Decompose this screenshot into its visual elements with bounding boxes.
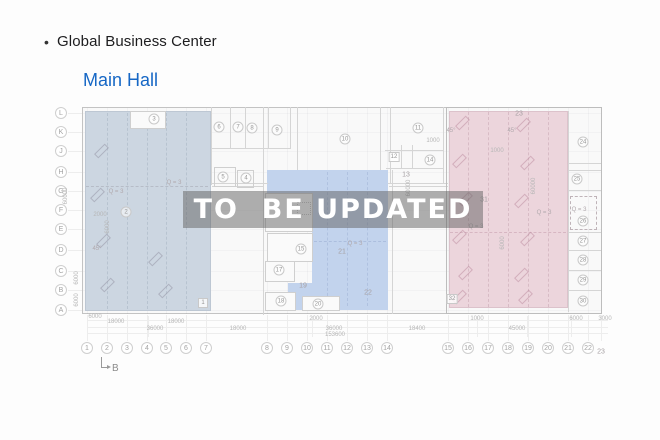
axis-leader-line — [127, 315, 128, 341]
row-axis-label: L — [55, 107, 67, 119]
watermark-banner: TO BE UPDATED — [183, 191, 483, 228]
room-number: 2 — [121, 207, 132, 218]
dimension-label: 60000 — [531, 178, 537, 195]
dimension-label: 45000 — [509, 326, 526, 332]
room-number: 30 — [578, 296, 589, 307]
room-number: 28 — [578, 255, 589, 266]
dimension-label: 1000 — [490, 148, 503, 154]
dimension-label: 2000 — [93, 212, 106, 218]
axis-leader-line — [307, 315, 308, 341]
wall-line — [380, 107, 381, 170]
col-axis-label: 8 — [261, 342, 273, 354]
row-axis-label: C — [55, 265, 67, 277]
axis-leader-line — [68, 310, 82, 311]
room-number: 26 — [578, 216, 589, 227]
row-axis-label: B — [55, 284, 67, 296]
dimension-line — [88, 320, 608, 321]
note-label: Q = 3 — [537, 210, 552, 216]
room-number: 18 — [276, 296, 287, 307]
dimension-label: 18400 — [409, 326, 426, 332]
room-number: 11 — [413, 123, 424, 134]
axis-leader-line — [287, 315, 288, 341]
room-number: 3 — [149, 114, 160, 125]
wall-line — [443, 107, 444, 184]
room-number: 15 — [296, 244, 307, 255]
row-axis-label: D — [55, 244, 67, 256]
row-axis-label: E — [55, 223, 67, 235]
dimension-line — [88, 333, 608, 334]
wall-line — [385, 150, 444, 151]
room-number: 8 — [247, 123, 258, 134]
room-number: 4 — [241, 173, 252, 184]
room-number: 6 — [214, 122, 225, 133]
note-label: Q = 3 — [348, 241, 363, 247]
list-bullet-icon: • — [44, 34, 49, 50]
axis-leader-line — [68, 290, 82, 291]
wall-line — [290, 107, 291, 148]
col-axis-label: 6 — [180, 342, 192, 354]
wall-line — [388, 183, 448, 184]
dimension-label: 6000 — [74, 293, 80, 306]
axis-leader-line — [206, 315, 207, 341]
axis-leader-line — [68, 113, 82, 114]
note-label: 45° — [446, 128, 455, 134]
room-number: 5 — [218, 172, 229, 183]
col-axis-label: 20 — [542, 342, 554, 354]
col-axis-label: 7 — [200, 342, 212, 354]
col-axis-label: 19 — [522, 342, 534, 354]
col-axis-label: 17 — [482, 342, 494, 354]
axis-leader-line — [548, 315, 549, 341]
dimension-label: 6000 — [569, 316, 582, 322]
page-title: Global Business Center — [57, 33, 217, 50]
axis-leader-line — [488, 315, 489, 341]
row-axis-label: A — [55, 304, 67, 316]
room-number: 29 — [578, 275, 589, 286]
col-axis-label: 22 — [582, 342, 594, 354]
axis-leader-line — [588, 315, 589, 341]
wall-line — [263, 107, 264, 193]
col-axis-label: 1 — [81, 342, 93, 354]
col-axis-label: 11 — [321, 342, 333, 354]
room-number: 20 — [313, 299, 324, 310]
dimension-label: 6000 — [500, 236, 506, 249]
dimension-label: 153600 — [325, 332, 345, 338]
dimension-label: 6000 — [88, 314, 101, 320]
room-number: 32 — [447, 294, 458, 304]
section-marker-label: B — [112, 363, 119, 374]
dimension-label: 6000 — [105, 220, 111, 233]
dimension-label: 2000 — [309, 316, 322, 322]
room-number: 14 — [425, 155, 436, 166]
room-number: 21 — [338, 249, 346, 256]
dimension-line — [527, 316, 528, 337]
zone-guide-line — [147, 113, 149, 309]
axis-leader-line — [468, 315, 469, 341]
wall-line — [386, 168, 443, 169]
axis-leader-line — [68, 229, 82, 230]
col-axis-label: 23 — [597, 349, 605, 356]
dimension-label: 18000 — [230, 326, 247, 332]
wall-line — [412, 145, 413, 168]
col-axis-label: 13 — [361, 342, 373, 354]
dimension-label: 6000 — [74, 271, 80, 284]
axis-leader-line — [68, 191, 82, 192]
room-number: 1 — [198, 298, 208, 308]
col-axis-label: 10 — [301, 342, 313, 354]
wall-line — [211, 148, 291, 149]
room-number: 7 — [233, 122, 244, 133]
room-number: 22 — [364, 290, 372, 297]
wall-line — [390, 107, 391, 184]
wall-line — [401, 145, 402, 168]
axis-leader-line — [68, 250, 82, 251]
col-axis-label: 9 — [281, 342, 293, 354]
note-label: 45° — [92, 246, 101, 252]
room-number: 24 — [578, 137, 589, 148]
zone-guide-line — [86, 186, 208, 188]
dimension-label: 1000 — [470, 316, 483, 322]
col-axis-label: 5 — [160, 342, 172, 354]
dimension-label: 36000 — [147, 326, 164, 332]
dimension-label: 60000 — [63, 188, 69, 205]
row-axis-label: J — [55, 145, 67, 157]
col-axis-label: 14 — [381, 342, 393, 354]
col-axis-label: 16 — [462, 342, 474, 354]
dimension-label: 18000 — [108, 319, 125, 325]
dimension-label: 18000 — [168, 319, 185, 325]
axis-leader-line — [68, 172, 82, 173]
col-axis-label: 2 — [101, 342, 113, 354]
zone-guide-line — [166, 113, 168, 309]
col-axis-label: 21 — [562, 342, 574, 354]
room-number: 13 — [402, 172, 410, 179]
dimension-line — [387, 316, 388, 337]
wall-line — [211, 107, 212, 185]
room-number: 19 — [299, 283, 307, 290]
wall-line — [389, 186, 448, 187]
row-axis-label: F — [55, 204, 67, 216]
note-label: 45° — [507, 128, 516, 134]
dimension-label: 3000 — [598, 316, 611, 322]
room-number: 10 — [340, 134, 351, 145]
wall-line — [297, 107, 298, 170]
watermark-text: TO BE UPDATED — [194, 194, 473, 225]
dimension-line — [448, 316, 449, 337]
note-label: Q = 3 — [167, 180, 182, 186]
room-number: 9 — [272, 125, 283, 136]
dimension-line — [267, 316, 268, 337]
room-number: 23 — [515, 111, 523, 118]
floor-title-link[interactable]: Main Hall — [83, 70, 158, 91]
room-number: 27 — [578, 236, 589, 247]
row-axis-label: H — [55, 166, 67, 178]
dimension-line — [347, 316, 348, 337]
dimension-label: 1000 — [426, 138, 439, 144]
col-axis-label: 18 — [502, 342, 514, 354]
col-axis-label: 12 — [341, 342, 353, 354]
dimension-line — [186, 316, 187, 337]
axis-leader-line — [68, 151, 82, 152]
room-number: 12 — [389, 152, 400, 162]
note-label: Q = 3 — [109, 189, 124, 195]
note-label: Q = 3 — [572, 207, 587, 213]
col-axis-label: 15 — [442, 342, 454, 354]
col-axis-label: 4 — [141, 342, 153, 354]
room-number: 25 — [572, 174, 583, 185]
section-marker-arrow-icon — [107, 365, 111, 369]
axis-leader-line — [528, 315, 529, 341]
axis-leader-line — [68, 210, 82, 211]
wall-line — [268, 107, 269, 148]
wall-line — [230, 107, 231, 148]
axis-leader-line — [367, 315, 368, 341]
axis-leader-line — [68, 132, 82, 133]
row-axis-label: K — [55, 126, 67, 138]
room-number: 17 — [274, 265, 285, 276]
col-axis-label: 3 — [121, 342, 133, 354]
dimension-line — [88, 327, 608, 328]
